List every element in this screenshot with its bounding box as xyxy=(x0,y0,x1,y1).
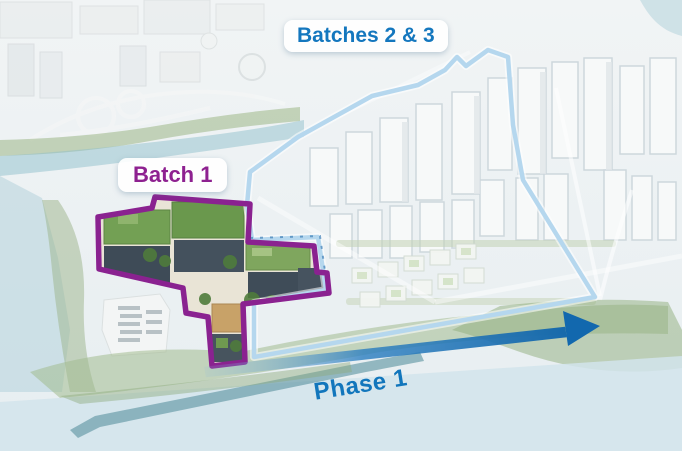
shadow xyxy=(606,62,612,170)
batch1-roof-garden xyxy=(252,248,272,256)
parked-bus xyxy=(118,338,140,342)
tower xyxy=(620,66,644,154)
tower xyxy=(658,182,676,240)
parked-bus xyxy=(118,306,140,310)
bldg xyxy=(80,6,138,34)
bldg xyxy=(120,46,146,86)
parked-bus xyxy=(118,322,140,326)
tower xyxy=(480,180,504,236)
aerial-masterplan-image: Batches 2 & 3 Batch 1 Phase 1 xyxy=(0,0,682,451)
tower xyxy=(650,58,676,154)
batch1-roof-garden xyxy=(172,202,244,238)
dome-arena xyxy=(239,54,265,80)
parked-bus xyxy=(120,314,142,318)
bus-depot xyxy=(102,294,170,356)
parked-bus xyxy=(120,330,142,334)
tower xyxy=(310,148,338,206)
tower xyxy=(552,62,578,158)
bldg xyxy=(160,52,200,82)
shadow xyxy=(402,122,408,202)
dome-arena-small xyxy=(201,33,217,49)
batch1-tan-roof xyxy=(212,304,244,332)
block-roof-garden xyxy=(357,272,367,279)
block xyxy=(360,292,380,307)
block-roof-garden xyxy=(443,278,453,285)
batch1-roof-garden xyxy=(216,338,228,348)
block-roof-garden xyxy=(409,260,419,267)
parked-bus xyxy=(146,320,162,324)
shadow xyxy=(540,72,546,174)
tree xyxy=(199,293,211,305)
batch-1-label: Batch 1 xyxy=(118,158,227,192)
tree xyxy=(159,255,171,267)
tower xyxy=(416,104,442,200)
tree xyxy=(143,248,157,262)
bldg xyxy=(40,52,62,98)
block-roof-garden xyxy=(461,248,471,255)
bldg xyxy=(8,44,34,96)
tower xyxy=(346,132,372,204)
bldg xyxy=(216,4,264,30)
bldg xyxy=(144,0,210,34)
tower xyxy=(604,170,626,240)
tower xyxy=(632,176,652,240)
shadow xyxy=(474,96,480,194)
bldg xyxy=(0,2,72,38)
block xyxy=(464,268,484,283)
block xyxy=(430,250,450,265)
tower xyxy=(390,206,412,258)
parked-bus xyxy=(146,330,162,334)
tower xyxy=(358,210,382,258)
batches-2-3-label: Batches 2 & 3 xyxy=(284,20,448,52)
tree xyxy=(223,255,237,269)
parked-bus xyxy=(146,310,162,314)
block-roof-garden xyxy=(391,290,401,297)
tree xyxy=(230,340,242,352)
